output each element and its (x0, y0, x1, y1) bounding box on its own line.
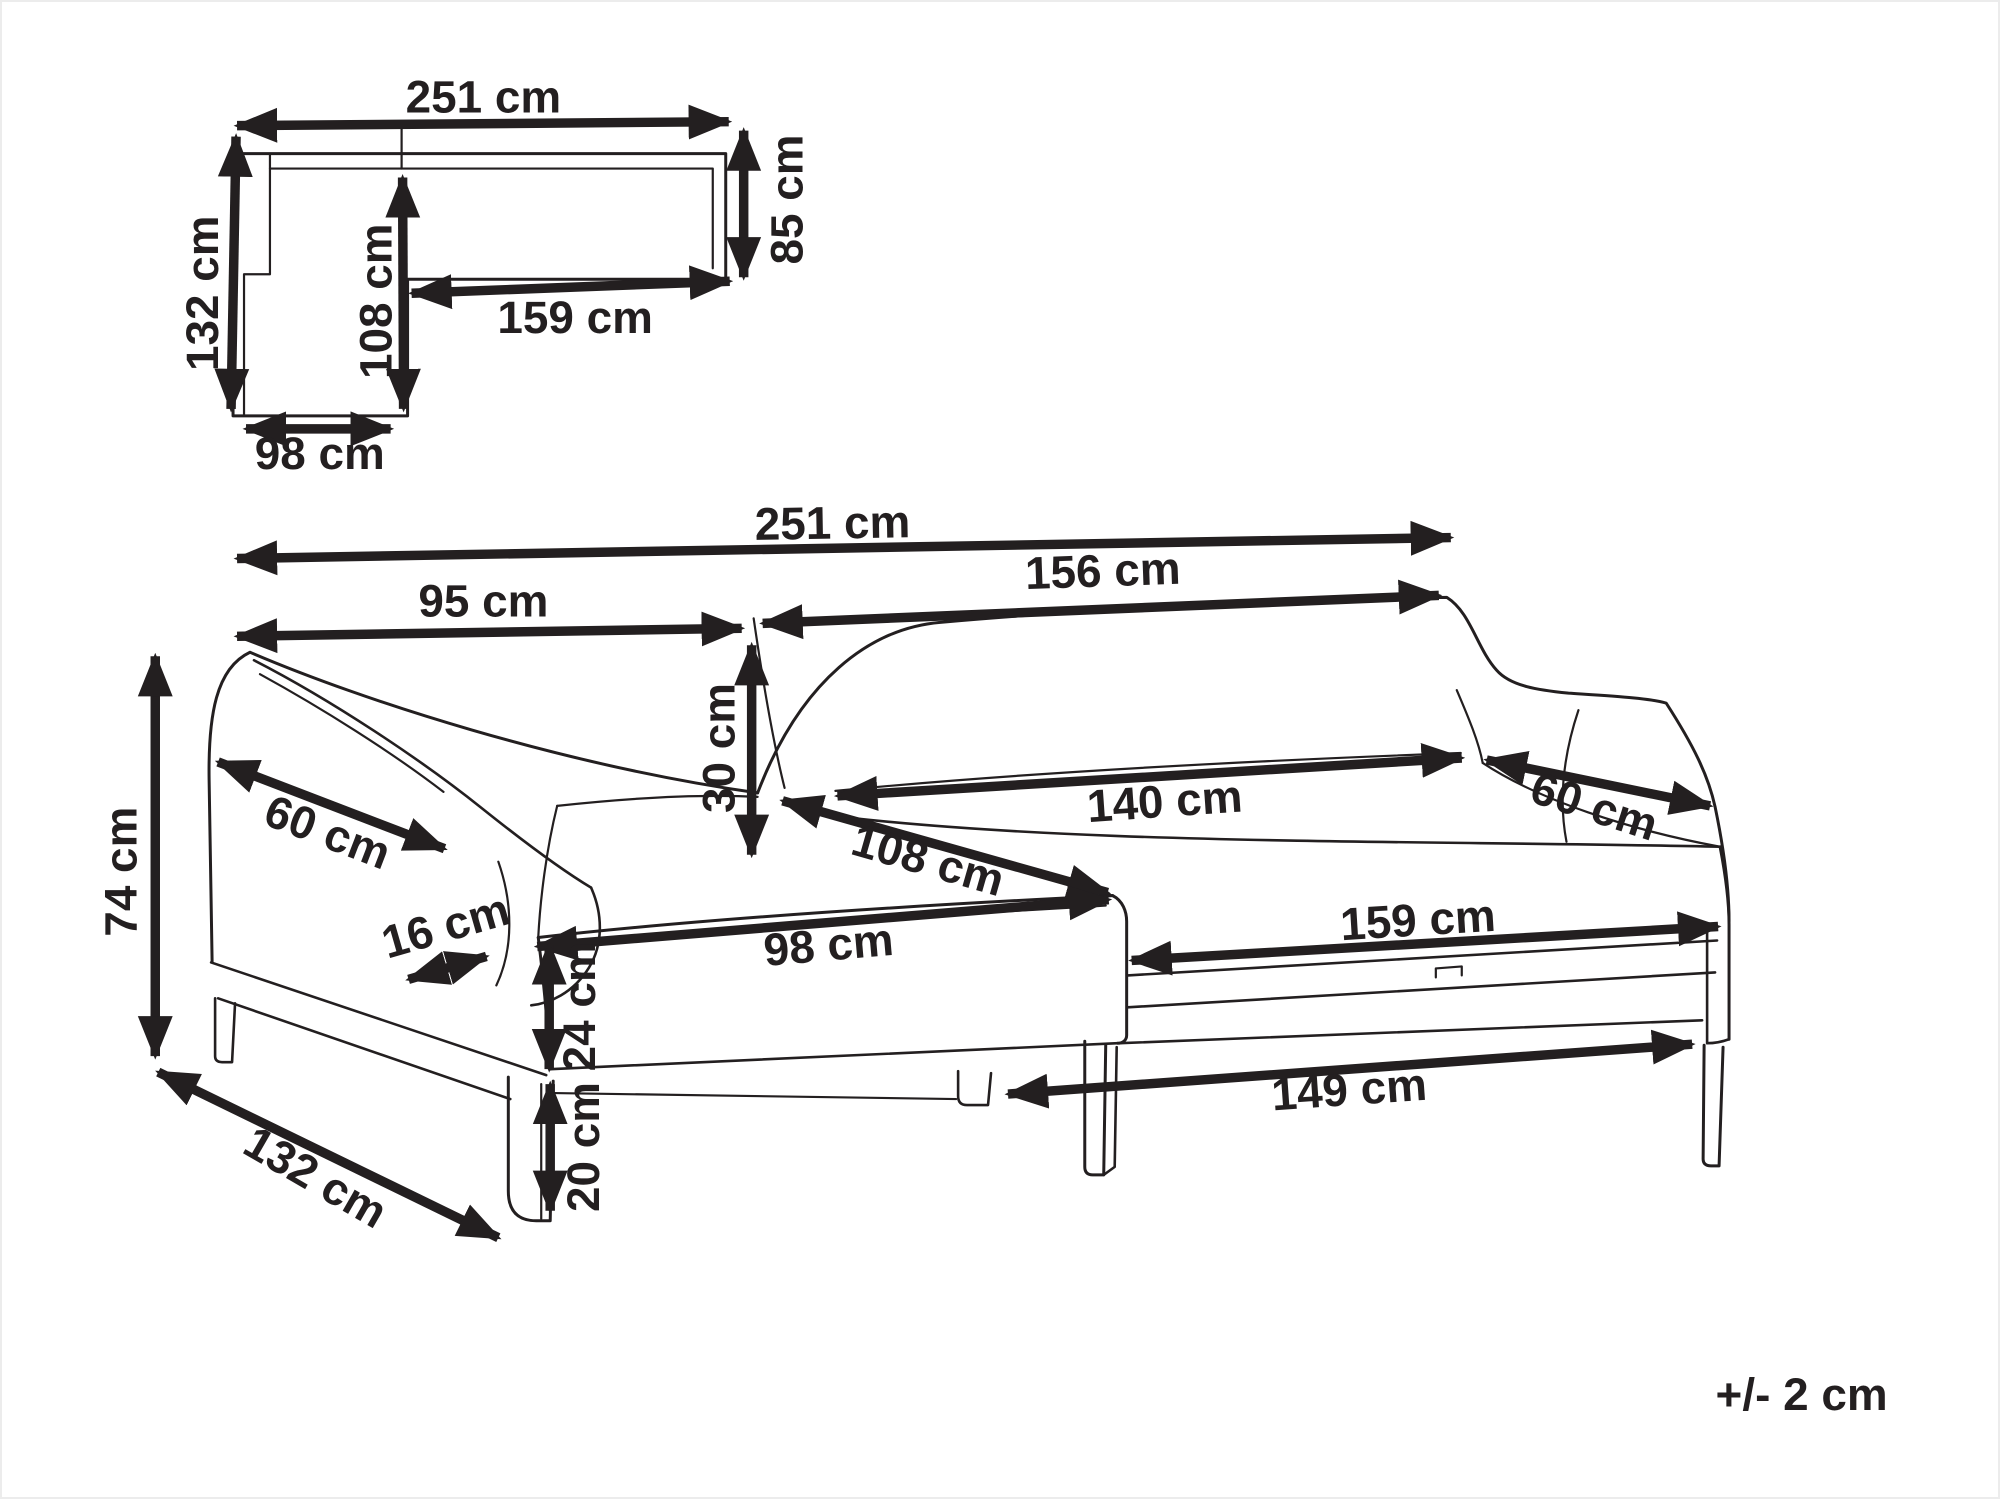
plan-view: 251 cm 132 cm 108 cm 159 cm 85 cm 98 cm (176, 71, 812, 479)
right-leg (1703, 1045, 1723, 1166)
tolerance-note: +/- 2 cm (1716, 1368, 1888, 1420)
dim-seat-width: 140 cm (837, 758, 1461, 832)
svg-text:140 cm: 140 cm (1085, 769, 1244, 832)
plan-dim-right-depth: 85 cm (744, 131, 813, 278)
dim-seat-base-height: 24 cm (549, 941, 605, 1071)
chaise-lower-rail (554, 1093, 956, 1099)
svg-text:251 cm: 251 cm (754, 495, 910, 550)
dim-armrest-thickness: 16 cm (376, 883, 515, 980)
dim-base-length: 149 cm (1008, 1044, 1692, 1120)
plan-inner-line-top (270, 154, 713, 269)
dim-total-height: 74 cm (94, 656, 155, 1056)
plan-dim-left-depth: 132 cm (176, 137, 236, 409)
svg-text:159 cm: 159 cm (1339, 889, 1497, 950)
chaise-bottom-edge (550, 1043, 1117, 1069)
dim-right-section-width: 156 cm (763, 542, 1439, 624)
svg-text:74 cm: 74 cm (94, 807, 146, 937)
center-leg (1085, 1041, 1106, 1175)
svg-text:24 cm: 24 cm (553, 941, 605, 1071)
svg-text:98 cm: 98 cm (761, 913, 895, 976)
plan-dim-total-width: 251 cm (237, 71, 729, 126)
svg-text:149 cm: 149 cm (1270, 1058, 1429, 1121)
dim-label: 251 cm (406, 71, 562, 123)
svg-text:16 cm: 16 cm (376, 883, 515, 969)
dim-total-depth: 132 cm (158, 1072, 498, 1238)
sofa-dimension-diagram: 251 cm 132 cm 108 cm 159 cm 85 cm 98 cm (2, 2, 1998, 1497)
dim-label: 132 cm (176, 215, 228, 371)
diagram-canvas: 251 cm 132 cm 108 cm 159 cm 85 cm 98 cm (0, 0, 2000, 1499)
chaise-cushion-left-edge (538, 806, 557, 938)
plan-dim-inner-width: 159 cm (412, 281, 730, 343)
dim-left-section-width: 95 cm (237, 574, 742, 636)
dim-chaise-length: 108 cm (783, 801, 1108, 906)
dim-label: 108 cm (350, 223, 402, 379)
chaise-right-leg-stub (958, 1071, 991, 1105)
plan-dim-chaise-width: 98 cm (246, 427, 391, 479)
right-base-bottom-edge (1120, 1020, 1702, 1043)
chaise-right-face (1113, 896, 1127, 1044)
plan-dim-inner-depth: 108 cm (350, 178, 404, 409)
dim-backrest-height: 30 cm (693, 645, 752, 854)
dim-label: 98 cm (255, 427, 385, 479)
plan-inner-line-left (244, 169, 270, 416)
chaise-left-rail-top (211, 962, 546, 1075)
perspective-dimensions: 251 cm 95 cm 156 cm 30 cm 60 cm 16 cm 10… (94, 495, 1718, 1238)
dim-label: 85 cm (761, 134, 813, 264)
dim-seat-front-length: 159 cm (1132, 889, 1718, 961)
svg-text:60 cm: 60 cm (1525, 761, 1665, 851)
dim-leg-height: 20 cm (550, 1082, 609, 1212)
dim-label: 159 cm (497, 291, 653, 343)
back-left-leg (215, 998, 235, 1062)
svg-text:60 cm: 60 cm (258, 784, 398, 879)
svg-text:95 cm: 95 cm (418, 574, 548, 626)
dim-total-width: 251 cm (237, 495, 1451, 558)
svg-text:30 cm: 30 cm (693, 683, 745, 813)
dim-left-armrest-depth: 60 cm (218, 762, 444, 879)
svg-text:156 cm: 156 cm (1024, 542, 1181, 599)
svg-text:108 cm: 108 cm (846, 813, 1010, 906)
left-armrest-inner-ridge (254, 660, 591, 887)
bed-latch-detail (1436, 966, 1462, 977)
right-rail-bottom (1128, 972, 1715, 1007)
right-base-inner-edge (1707, 931, 1729, 1044)
svg-text:20 cm: 20 cm (557, 1082, 609, 1212)
